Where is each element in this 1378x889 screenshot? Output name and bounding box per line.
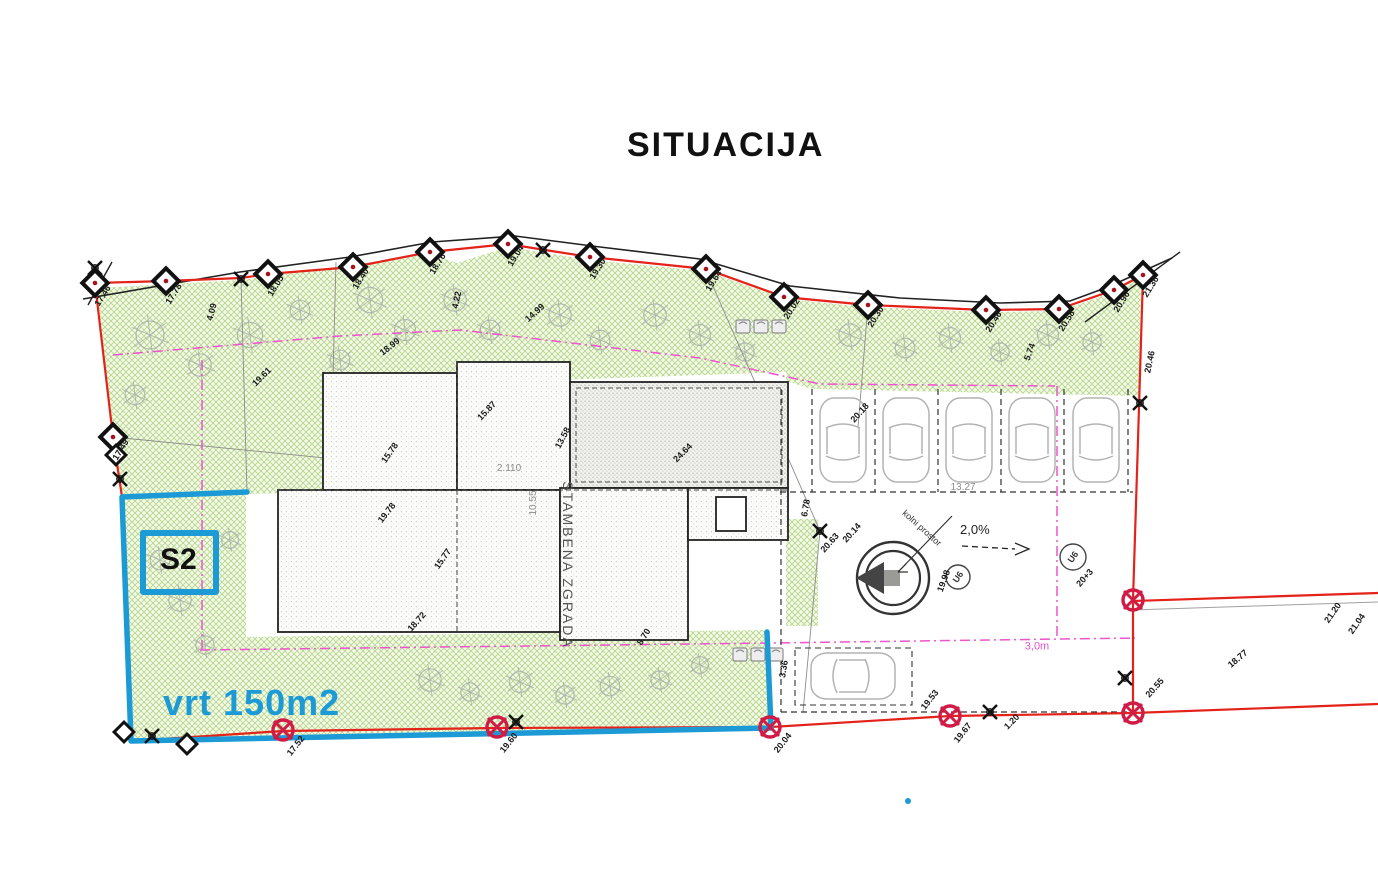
car-icon — [883, 398, 929, 482]
survey-cross-marker — [1118, 671, 1132, 685]
car-icon — [946, 398, 992, 482]
bin-icon — [733, 648, 747, 661]
dimension-label: 3,0m — [1025, 642, 1049, 653]
car-icon — [1009, 398, 1055, 482]
site-plan-canvas: SITUACIJA S2 vrt 150m2 STAMBENA ZGRADA k… — [0, 0, 1378, 889]
car-icon — [1073, 398, 1119, 482]
blue-dot — [905, 798, 911, 804]
page-title: SITUACIJA — [627, 126, 824, 165]
dimension-label: 13.27 — [950, 483, 975, 493]
parked-cars — [811, 398, 1119, 699]
bin-icon — [772, 320, 786, 333]
bin-icon — [754, 320, 768, 333]
car-icon — [811, 653, 895, 699]
bin-icon — [751, 648, 765, 661]
dimension-label: 2.110 — [497, 464, 521, 474]
utility-circles — [946, 544, 1086, 589]
slope-label: 2,0% — [960, 522, 990, 537]
bin-icon — [736, 320, 750, 333]
slope-arrow — [962, 543, 1029, 555]
building-label: STAMBENA ZGRADA — [560, 481, 576, 648]
building-shaft — [716, 497, 746, 531]
dimension-label: 10.55 — [529, 490, 539, 515]
turning-circle-symbol — [856, 516, 952, 614]
garden-area-label: vrt 150m2 — [163, 682, 340, 724]
unit-label: S2 — [160, 543, 197, 577]
